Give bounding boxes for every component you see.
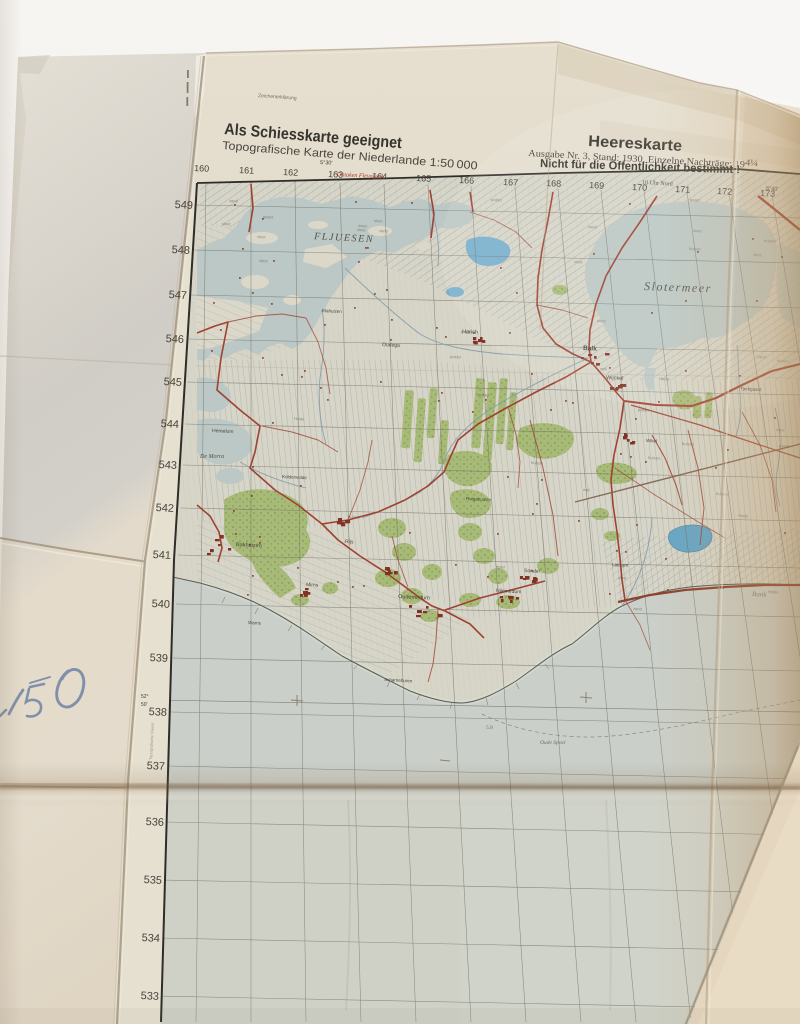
svg-text:543: 543 (158, 459, 177, 472)
svg-text:165: 165 (416, 173, 432, 184)
svg-text:547: 547 (168, 289, 187, 302)
svg-text:5°30': 5°30' (320, 160, 333, 167)
svg-text:50': 50' (141, 702, 148, 708)
svg-text:541: 541 (152, 549, 171, 562)
svg-text:538: 538 (148, 706, 167, 719)
svg-text:160: 160 (194, 163, 210, 174)
svg-text:52°: 52° (141, 694, 149, 700)
svg-text:549: 549 (174, 199, 193, 212)
svg-text:542: 542 (155, 502, 174, 515)
svg-text:162: 162 (283, 167, 299, 178)
svg-text:546: 546 (165, 333, 184, 346)
svg-text:544: 544 (160, 418, 179, 431)
svg-text:535: 535 (143, 874, 162, 887)
svg-text:536: 536 (145, 816, 164, 829)
svg-text:539: 539 (149, 652, 168, 665)
svg-text:534: 534 (141, 932, 160, 945)
svg-text:540: 540 (151, 598, 170, 611)
svg-text:533: 533 (140, 990, 159, 1003)
svg-text:161: 161 (239, 165, 255, 176)
svg-text:545: 545 (163, 376, 182, 389)
svg-text:548: 548 (171, 244, 190, 257)
